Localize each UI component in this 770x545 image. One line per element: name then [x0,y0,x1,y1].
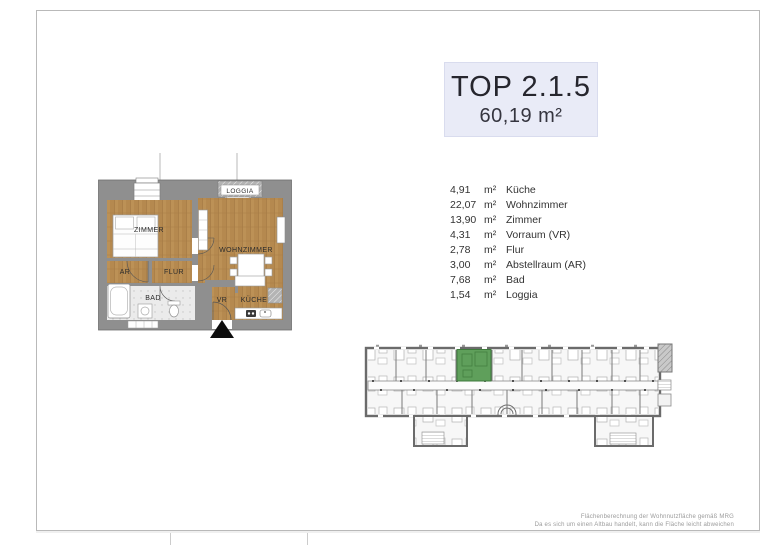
room-area-list: 4,91 m² Küche 22,07 m² Wohnzimmer 13,90 … [450,183,586,303]
kitchen-counter-lower [235,308,282,319]
room-area-row: 13,90 m² Zimmer [450,213,586,228]
corridor [368,381,658,390]
room-area-unit: m² [484,288,506,303]
room-area-unit: m² [484,228,506,243]
inner-wall [195,283,212,320]
building-site-plan-drawing [362,342,674,450]
room-name: Loggia [506,288,538,303]
room-name: Vorraum (VR) [506,228,570,243]
stove [246,310,256,317]
inner-wall [205,280,235,287]
room-name: Zimmer [506,213,542,228]
fold-mark [307,533,308,545]
room-area-row: 22,07 m² Wohnzimmer [450,198,586,213]
fold-mark [170,533,171,545]
room-area-value: 4,31 [450,228,484,243]
room-label-bad: BAD [145,295,161,302]
room-area-unit: m² [484,273,506,288]
chair [230,257,237,264]
room-area-value: 4,91 [450,183,484,198]
chair [265,257,272,264]
room-area-value: 2,78 [450,243,484,258]
footnote-line-1: Flächenberechnung der Wohnnutzfläche gem… [535,513,734,521]
room-area-row: 4,91 m² Küche [450,183,586,198]
right-wing-stairs [610,433,636,444]
room-label-vr: VR [217,297,228,304]
room-name: Bad [506,273,525,288]
annex-room [658,394,671,406]
room-name: Flur [506,243,524,258]
unit-title-box: TOP 2.1.5 60,19 m² [444,62,598,137]
kitchen-fixed-block [268,288,282,303]
room-area-value: 22,07 [450,198,484,213]
room-area-row: 3,00 m² Abstellraum (AR) [450,258,586,273]
annex-stairs [658,380,671,390]
room-label-loggia: LOGGIA [226,188,254,195]
room-area-unit: m² [484,258,506,273]
units-bottom-row [368,390,658,414]
room-area-value: 1,54 [450,288,484,303]
door-opening [192,238,198,254]
room-name: Wohnzimmer [506,198,568,213]
wc-tank [168,301,180,305]
sink [260,310,271,317]
washing-machine [138,304,152,318]
window-ledge [136,178,158,183]
expose-page: TOP 2.1.5 60,19 m² 4,91 m² Küche 22,07 m… [0,0,770,545]
room-area-value: 7,68 [450,273,484,288]
building-site-plan [362,342,674,450]
room-label-wohnzimmer: WOHNZIMMER [219,247,273,254]
chair [230,269,237,276]
room-area-value: 13,90 [450,213,484,228]
bathtub [108,284,130,318]
room-label-flur: FLUR [164,269,184,276]
footnote-line-2: Da es sich um einen Altbau handelt, kann… [535,521,734,529]
footnote: Flächenberechnung der Wohnnutzfläche gem… [535,513,734,529]
bad-window [128,321,158,328]
kitchen-counter-upper [235,276,265,286]
room-name: Abstellraum (AR) [506,258,586,273]
units-top-row [368,350,658,381]
unit-total-area: 60,19 m² [480,103,563,129]
room-area-row: 4,31 m² Vorraum (VR) [450,228,586,243]
wohnzimmer-window [277,217,285,243]
room-area-row: 7,68 m² Bad [450,273,586,288]
unit-floor-plan-drawing: LOGGIA [98,150,294,340]
room-area-unit: m² [484,183,506,198]
room-area-value: 3,00 [450,258,484,273]
room-label-zimmer: ZIMMER [134,227,164,234]
room-label-kueche: KÜCHE [241,296,268,304]
bed-pillow [116,217,134,229]
room-label-ar: AR [120,269,131,276]
door-opening [192,265,198,281]
wc [170,305,179,317]
room-area-unit: m² [484,213,506,228]
room-name: Küche [506,183,536,198]
room-area-unit: m² [484,243,506,258]
room-area-row: 1,54 m² Loggia [450,288,586,303]
room-area-unit: m² [484,198,506,213]
unit-floor-plan: LOGGIA [98,150,294,340]
left-wing-stairs [422,432,444,444]
annex-roof [658,344,672,372]
chair [265,269,272,276]
unit-title: TOP 2.1.5 [451,71,591,103]
room-area-row: 2,78 m² Flur [450,243,586,258]
